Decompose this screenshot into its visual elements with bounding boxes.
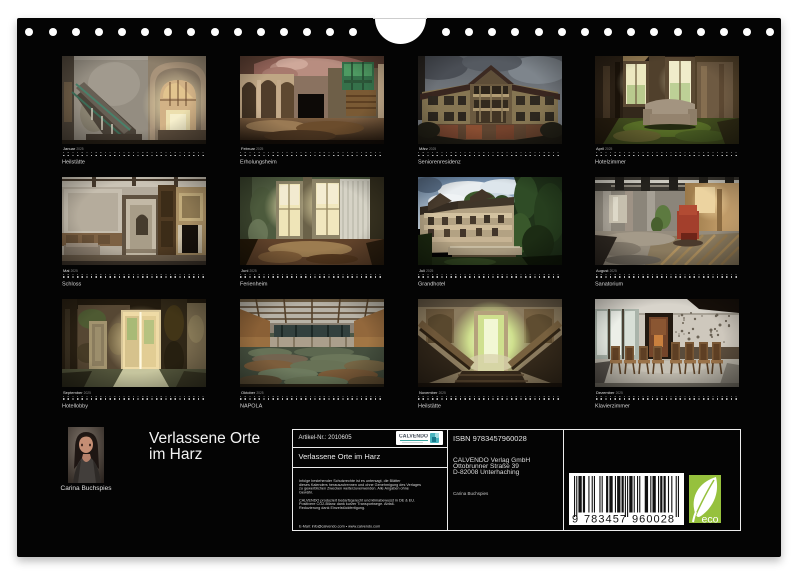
svg-text:960028: 960028 — [632, 514, 674, 526]
svg-text:eco: eco — [701, 513, 718, 523]
svg-text:783457: 783457 — [584, 514, 626, 526]
svg-text:9: 9 — [572, 514, 578, 526]
